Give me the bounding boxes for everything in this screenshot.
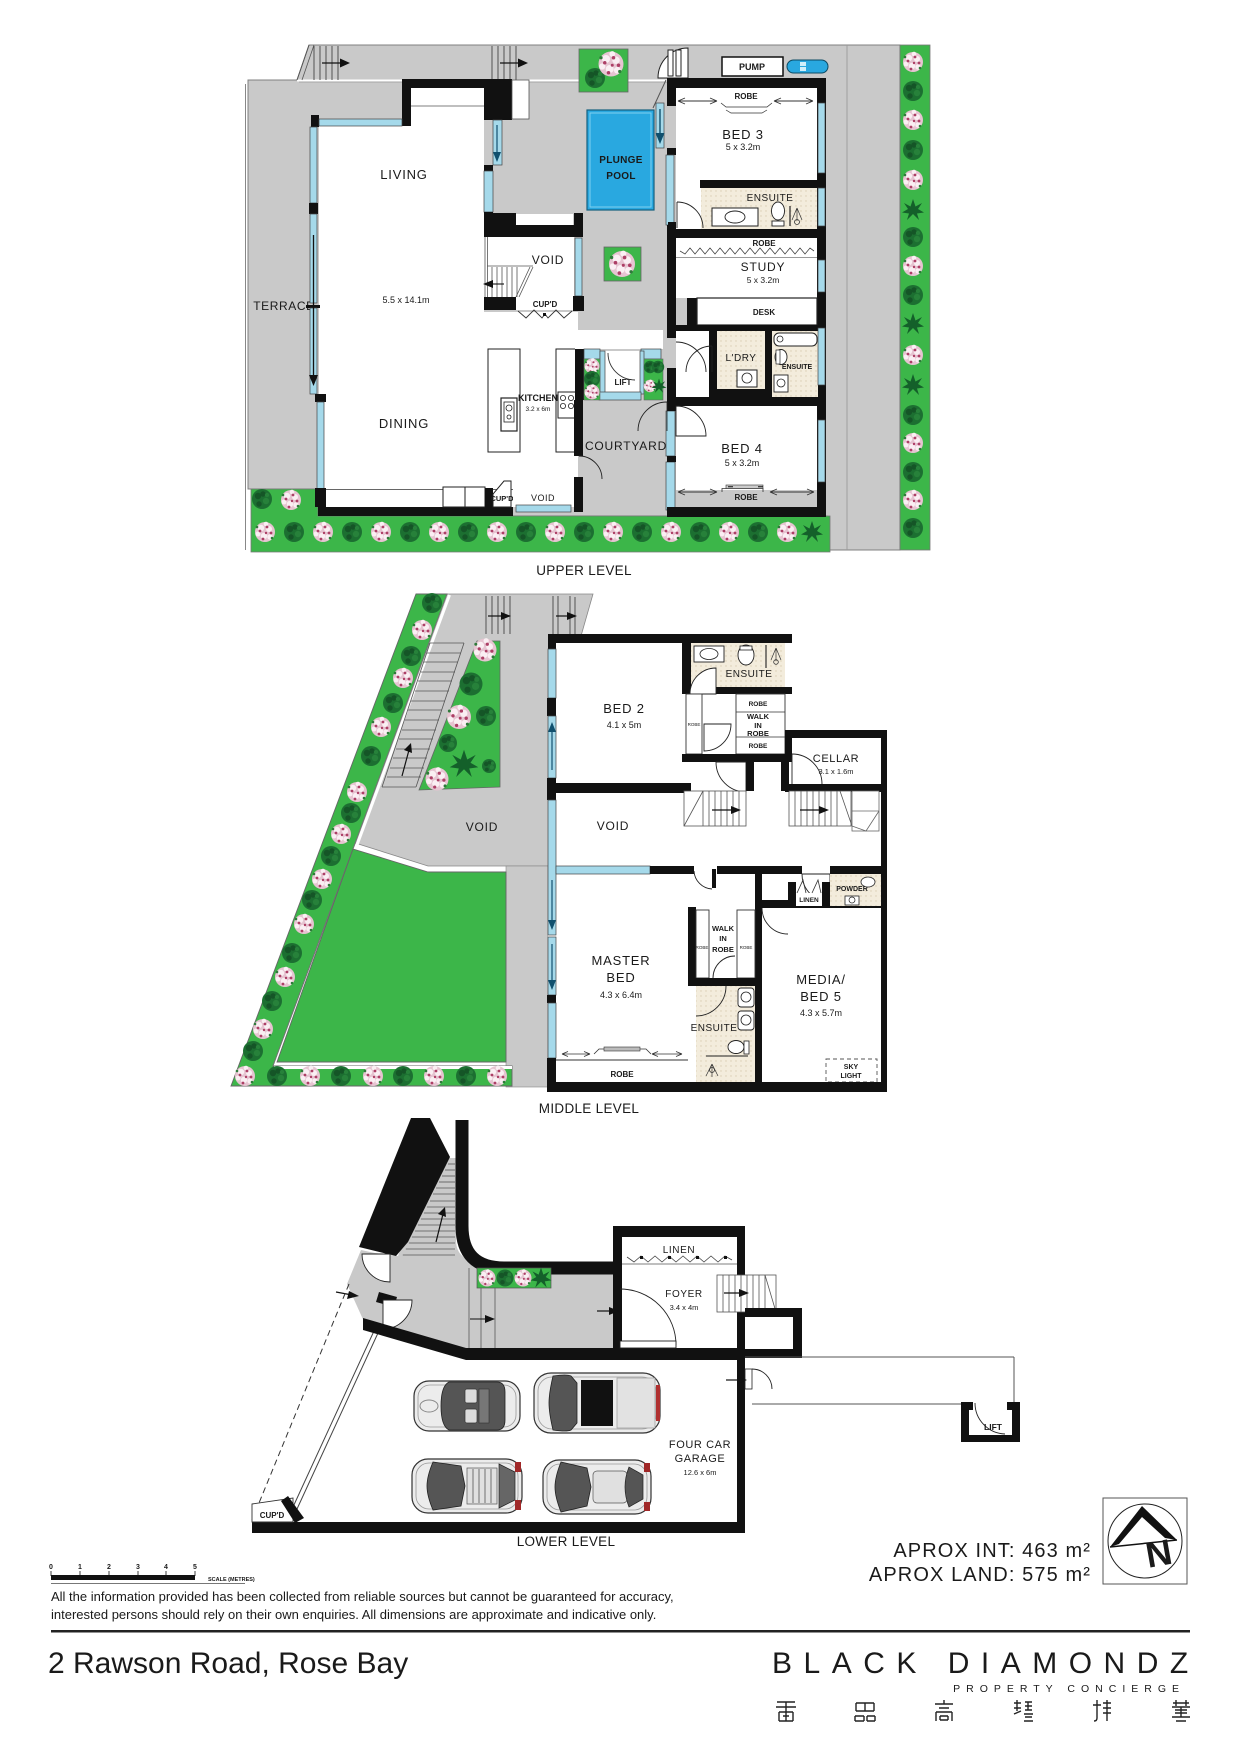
svg-text:5: 5 (193, 1564, 197, 1571)
svg-text:COURTYARD: COURTYARD (585, 439, 667, 453)
svg-text:DESK: DESK (753, 308, 775, 317)
svg-text:LINEN: LINEN (799, 897, 819, 904)
svg-text:DINING: DINING (379, 416, 429, 431)
svg-text:4: 4 (164, 1564, 168, 1571)
svg-text:SKY: SKY (844, 1064, 859, 1071)
svg-text:FOYER: FOYER (665, 1289, 702, 1300)
svg-text:TERRACE: TERRACE (253, 299, 315, 313)
svg-text:CUP'D: CUP'D (490, 494, 514, 503)
svg-text:BED 3: BED 3 (722, 127, 764, 142)
svg-text:MEDIA/: MEDIA/ (796, 972, 846, 987)
svg-text:IN: IN (719, 934, 727, 943)
svg-text:5 x 3.2m: 5 x 3.2m (747, 275, 780, 285)
svg-text:CELLAR: CELLAR (813, 753, 859, 765)
svg-text:4.3 x 6.4m: 4.3 x 6.4m (600, 990, 642, 1000)
svg-text:LOWER LEVEL: LOWER LEVEL (517, 1534, 616, 1549)
svg-text:4.1 x 5m: 4.1 x 5m (607, 720, 642, 730)
svg-text:LIVING: LIVING (380, 167, 427, 182)
svg-text:All the information provided h: All the information provided has been co… (51, 1589, 674, 1604)
svg-text:BLACK DIAMONDZ: BLACK DIAMONDZ (772, 1647, 1200, 1680)
svg-text:STUDY: STUDY (741, 260, 786, 274)
svg-text:5 x 3.2m: 5 x 3.2m (725, 458, 760, 468)
svg-text:VOID: VOID (531, 493, 555, 503)
svg-text:12.6 x 6m: 12.6 x 6m (684, 1468, 717, 1477)
svg-text:ROBE: ROBE (734, 493, 758, 502)
svg-text:WALK: WALK (712, 924, 735, 933)
svg-text:3: 3 (136, 1564, 140, 1571)
svg-text:ROBE: ROBE (740, 945, 753, 950)
svg-text:3.1 x 1.6m: 3.1 x 1.6m (818, 767, 853, 776)
svg-text:VOID: VOID (466, 820, 499, 834)
svg-text:MASTER: MASTER (592, 953, 651, 968)
svg-text:4.3 x 5.7m: 4.3 x 5.7m (800, 1008, 842, 1018)
svg-text:5 x 3.2m: 5 x 3.2m (726, 142, 761, 152)
svg-text:PLUNGE: PLUNGE (599, 155, 642, 166)
svg-text:L'DRY: L'DRY (726, 353, 757, 364)
svg-text:VOID: VOID (597, 819, 630, 833)
svg-text:BED 2: BED 2 (603, 701, 645, 716)
svg-text:3.2 x 6m: 3.2 x 6m (526, 406, 551, 413)
svg-text:POOL: POOL (606, 171, 636, 182)
svg-text:ENSUITE: ENSUITE (747, 193, 794, 204)
svg-text:SCALE (METRES): SCALE (METRES) (208, 1577, 255, 1583)
svg-text:interested persons should rely: interested persons should rely on their … (51, 1607, 656, 1622)
svg-text:UPPER LEVEL: UPPER LEVEL (536, 563, 632, 578)
svg-text:BED 5: BED 5 (800, 989, 842, 1004)
svg-text:ROBE: ROBE (696, 945, 709, 950)
svg-text:3.4 x 4m: 3.4 x 4m (670, 1303, 699, 1312)
svg-text:0: 0 (49, 1564, 53, 1571)
svg-text:PROPERTY CONCIERGE: PROPERTY CONCIERGE (953, 1683, 1185, 1695)
svg-text:MIDDLE LEVEL: MIDDLE LEVEL (539, 1101, 640, 1116)
svg-text:ROBE: ROBE (747, 729, 769, 738)
svg-text:BED 4: BED 4 (721, 441, 763, 456)
svg-text:LINEN: LINEN (663, 1245, 695, 1256)
svg-text:ENSUITE: ENSUITE (782, 364, 813, 371)
svg-text:2 Rawson Road, Rose Bay: 2 Rawson Road, Rose Bay (48, 1647, 408, 1680)
svg-text:ROBE: ROBE (712, 945, 734, 954)
svg-text:ROBE: ROBE (749, 743, 768, 750)
svg-text:ROBE: ROBE (734, 92, 758, 101)
svg-text:LIGHT: LIGHT (841, 1073, 863, 1080)
svg-text:APROX INT: 463 m²: APROX INT: 463 m² (893, 1540, 1091, 1562)
svg-text:POWDER: POWDER (836, 886, 868, 893)
svg-text:KITCHEN: KITCHEN (518, 393, 558, 403)
svg-text:CUP'D: CUP'D (260, 1511, 285, 1520)
svg-text:LIFT: LIFT (984, 1422, 1003, 1432)
svg-text:ROBE: ROBE (610, 1070, 634, 1079)
svg-text:APROX LAND: 575 m²: APROX LAND: 575 m² (869, 1564, 1091, 1586)
svg-text:ROBE: ROBE (688, 722, 701, 727)
svg-text:BED: BED (606, 970, 635, 985)
svg-text:CUP'D: CUP'D (533, 300, 558, 309)
svg-text:PUMP: PUMP (739, 62, 765, 72)
svg-text:1: 1 (78, 1564, 82, 1571)
svg-text:5.5 x 14.1m: 5.5 x 14.1m (382, 295, 429, 305)
svg-text:WALK: WALK (747, 712, 770, 721)
svg-text:GARAGE: GARAGE (675, 1453, 726, 1465)
svg-text:ENSUITE: ENSUITE (726, 669, 773, 680)
svg-text:ENSUITE: ENSUITE (691, 1023, 738, 1034)
svg-text:FOUR CAR: FOUR CAR (669, 1439, 731, 1451)
svg-text:VOID: VOID (532, 253, 565, 267)
svg-text:2: 2 (107, 1564, 111, 1571)
svg-text:ROBE: ROBE (749, 701, 768, 708)
svg-text:ROBE: ROBE (752, 239, 776, 248)
